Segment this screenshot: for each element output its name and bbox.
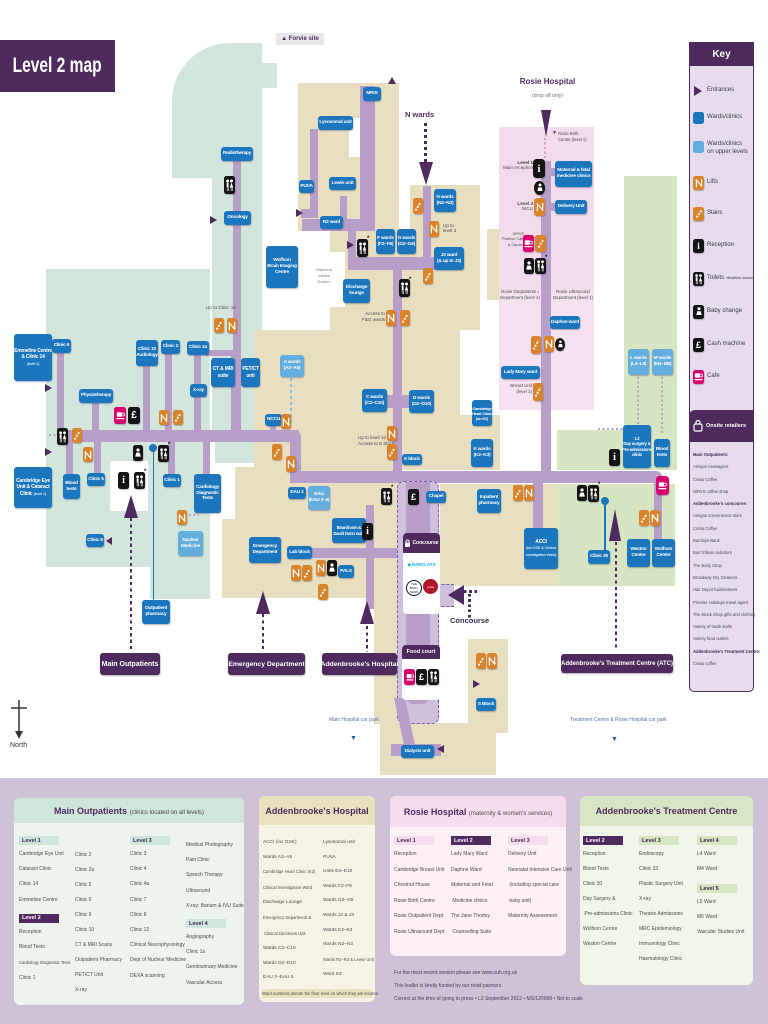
svg-text:North: North (10, 742, 27, 749)
